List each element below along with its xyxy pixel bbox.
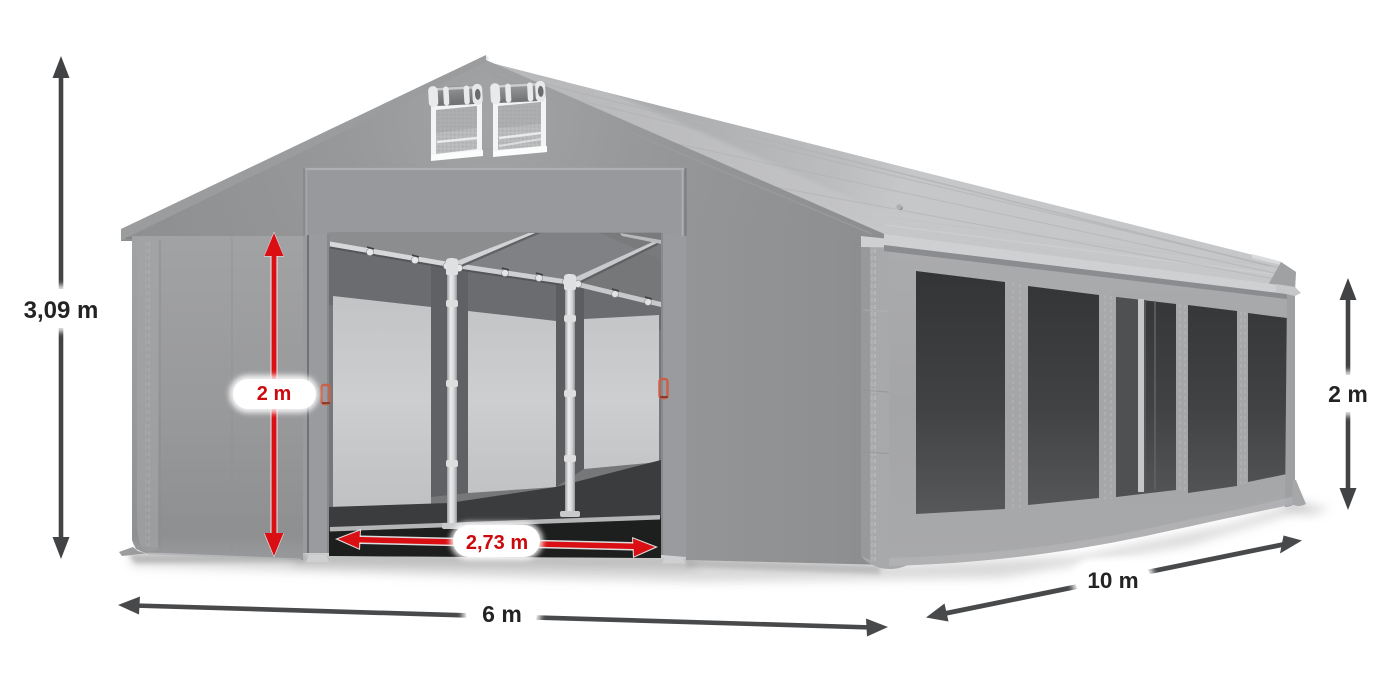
svg-text:3,09 m: 3,09 m bbox=[24, 297, 99, 324]
svg-text:2 m: 2 m bbox=[257, 383, 291, 405]
svg-text:10 m: 10 m bbox=[1087, 568, 1138, 593]
svg-text:2,73 m: 2,73 m bbox=[466, 532, 528, 554]
svg-text:2 m: 2 m bbox=[1328, 381, 1368, 407]
svg-text:6 m: 6 m bbox=[482, 601, 522, 627]
